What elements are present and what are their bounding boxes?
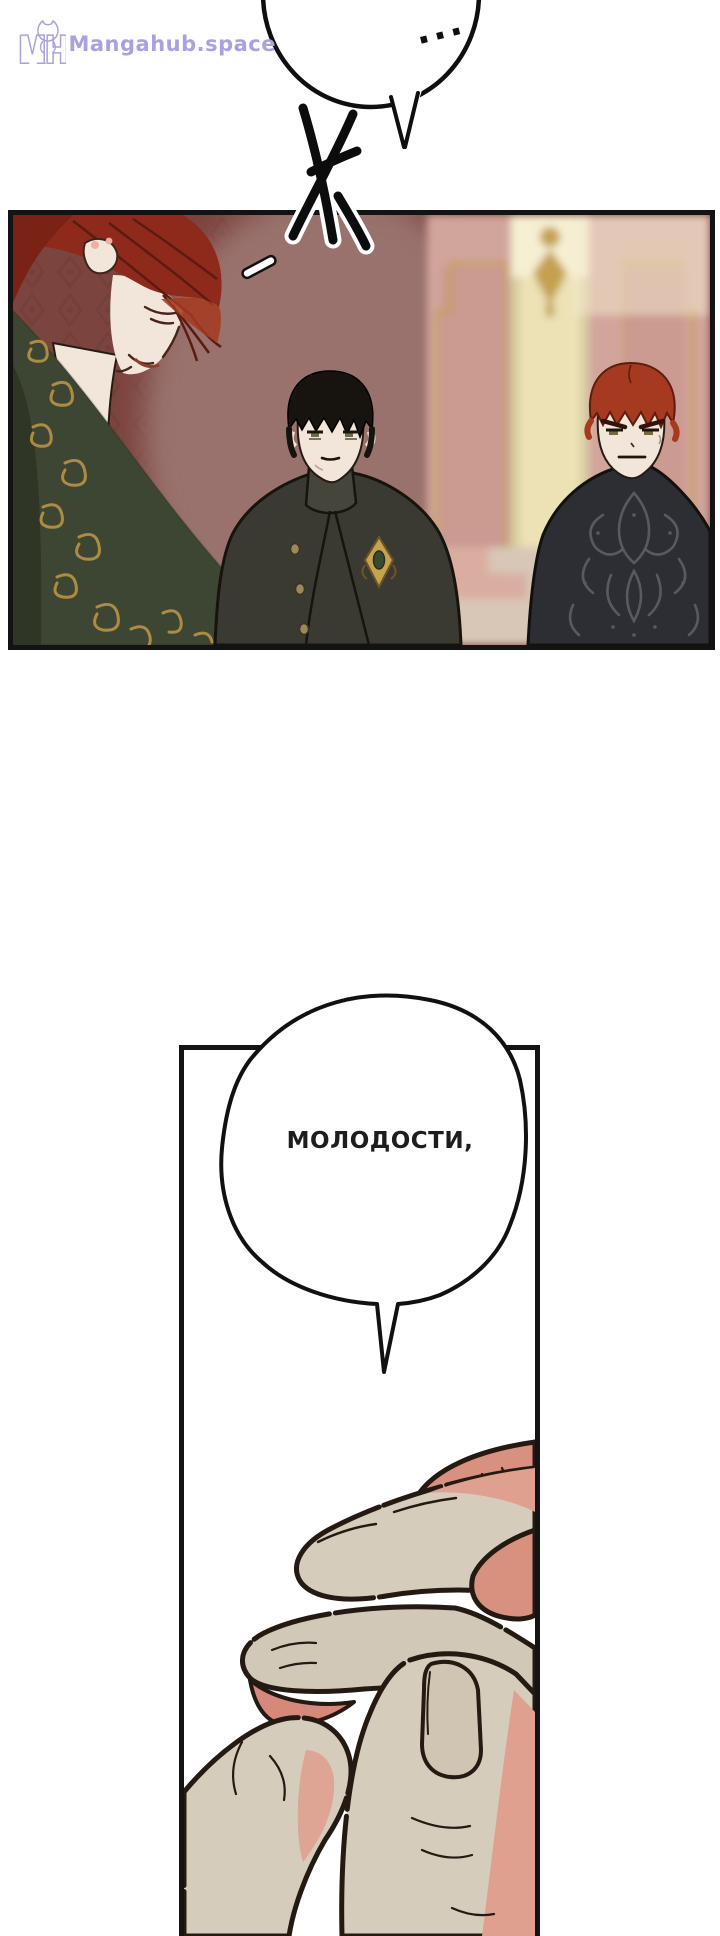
comic-page: Mangahub.space ... <box>0 0 720 1936</box>
speech-bubble-middle <box>205 980 545 1390</box>
panel-1 <box>8 210 715 650</box>
bubble-text: МОЛОДОСТИ, <box>275 1128 485 1154</box>
site-name: Mangahub.space <box>68 32 276 56</box>
fox-monogram-icon <box>16 10 66 78</box>
mangahub-logo[interactable]: Mangahub.space <box>16 8 276 80</box>
